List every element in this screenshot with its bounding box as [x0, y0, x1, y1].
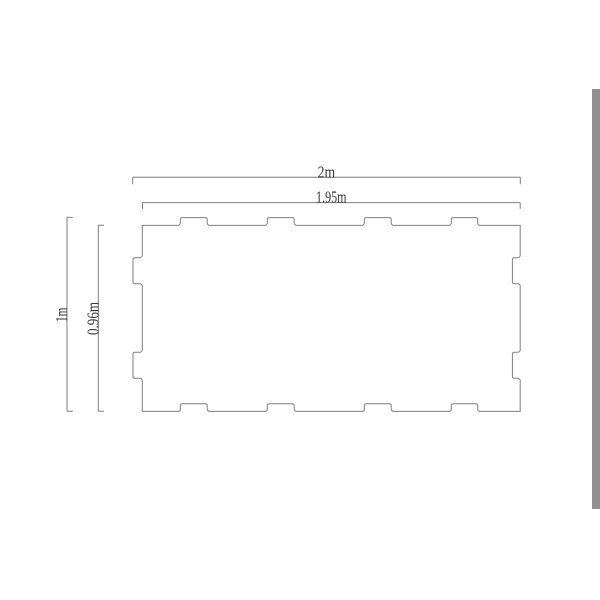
- svg-text:2m: 2m: [318, 163, 336, 182]
- svg-text:1m: 1m: [52, 308, 71, 323]
- svg-text:0.96m: 0.96m: [83, 302, 102, 335]
- svg-text:1.95m: 1.95m: [316, 188, 347, 207]
